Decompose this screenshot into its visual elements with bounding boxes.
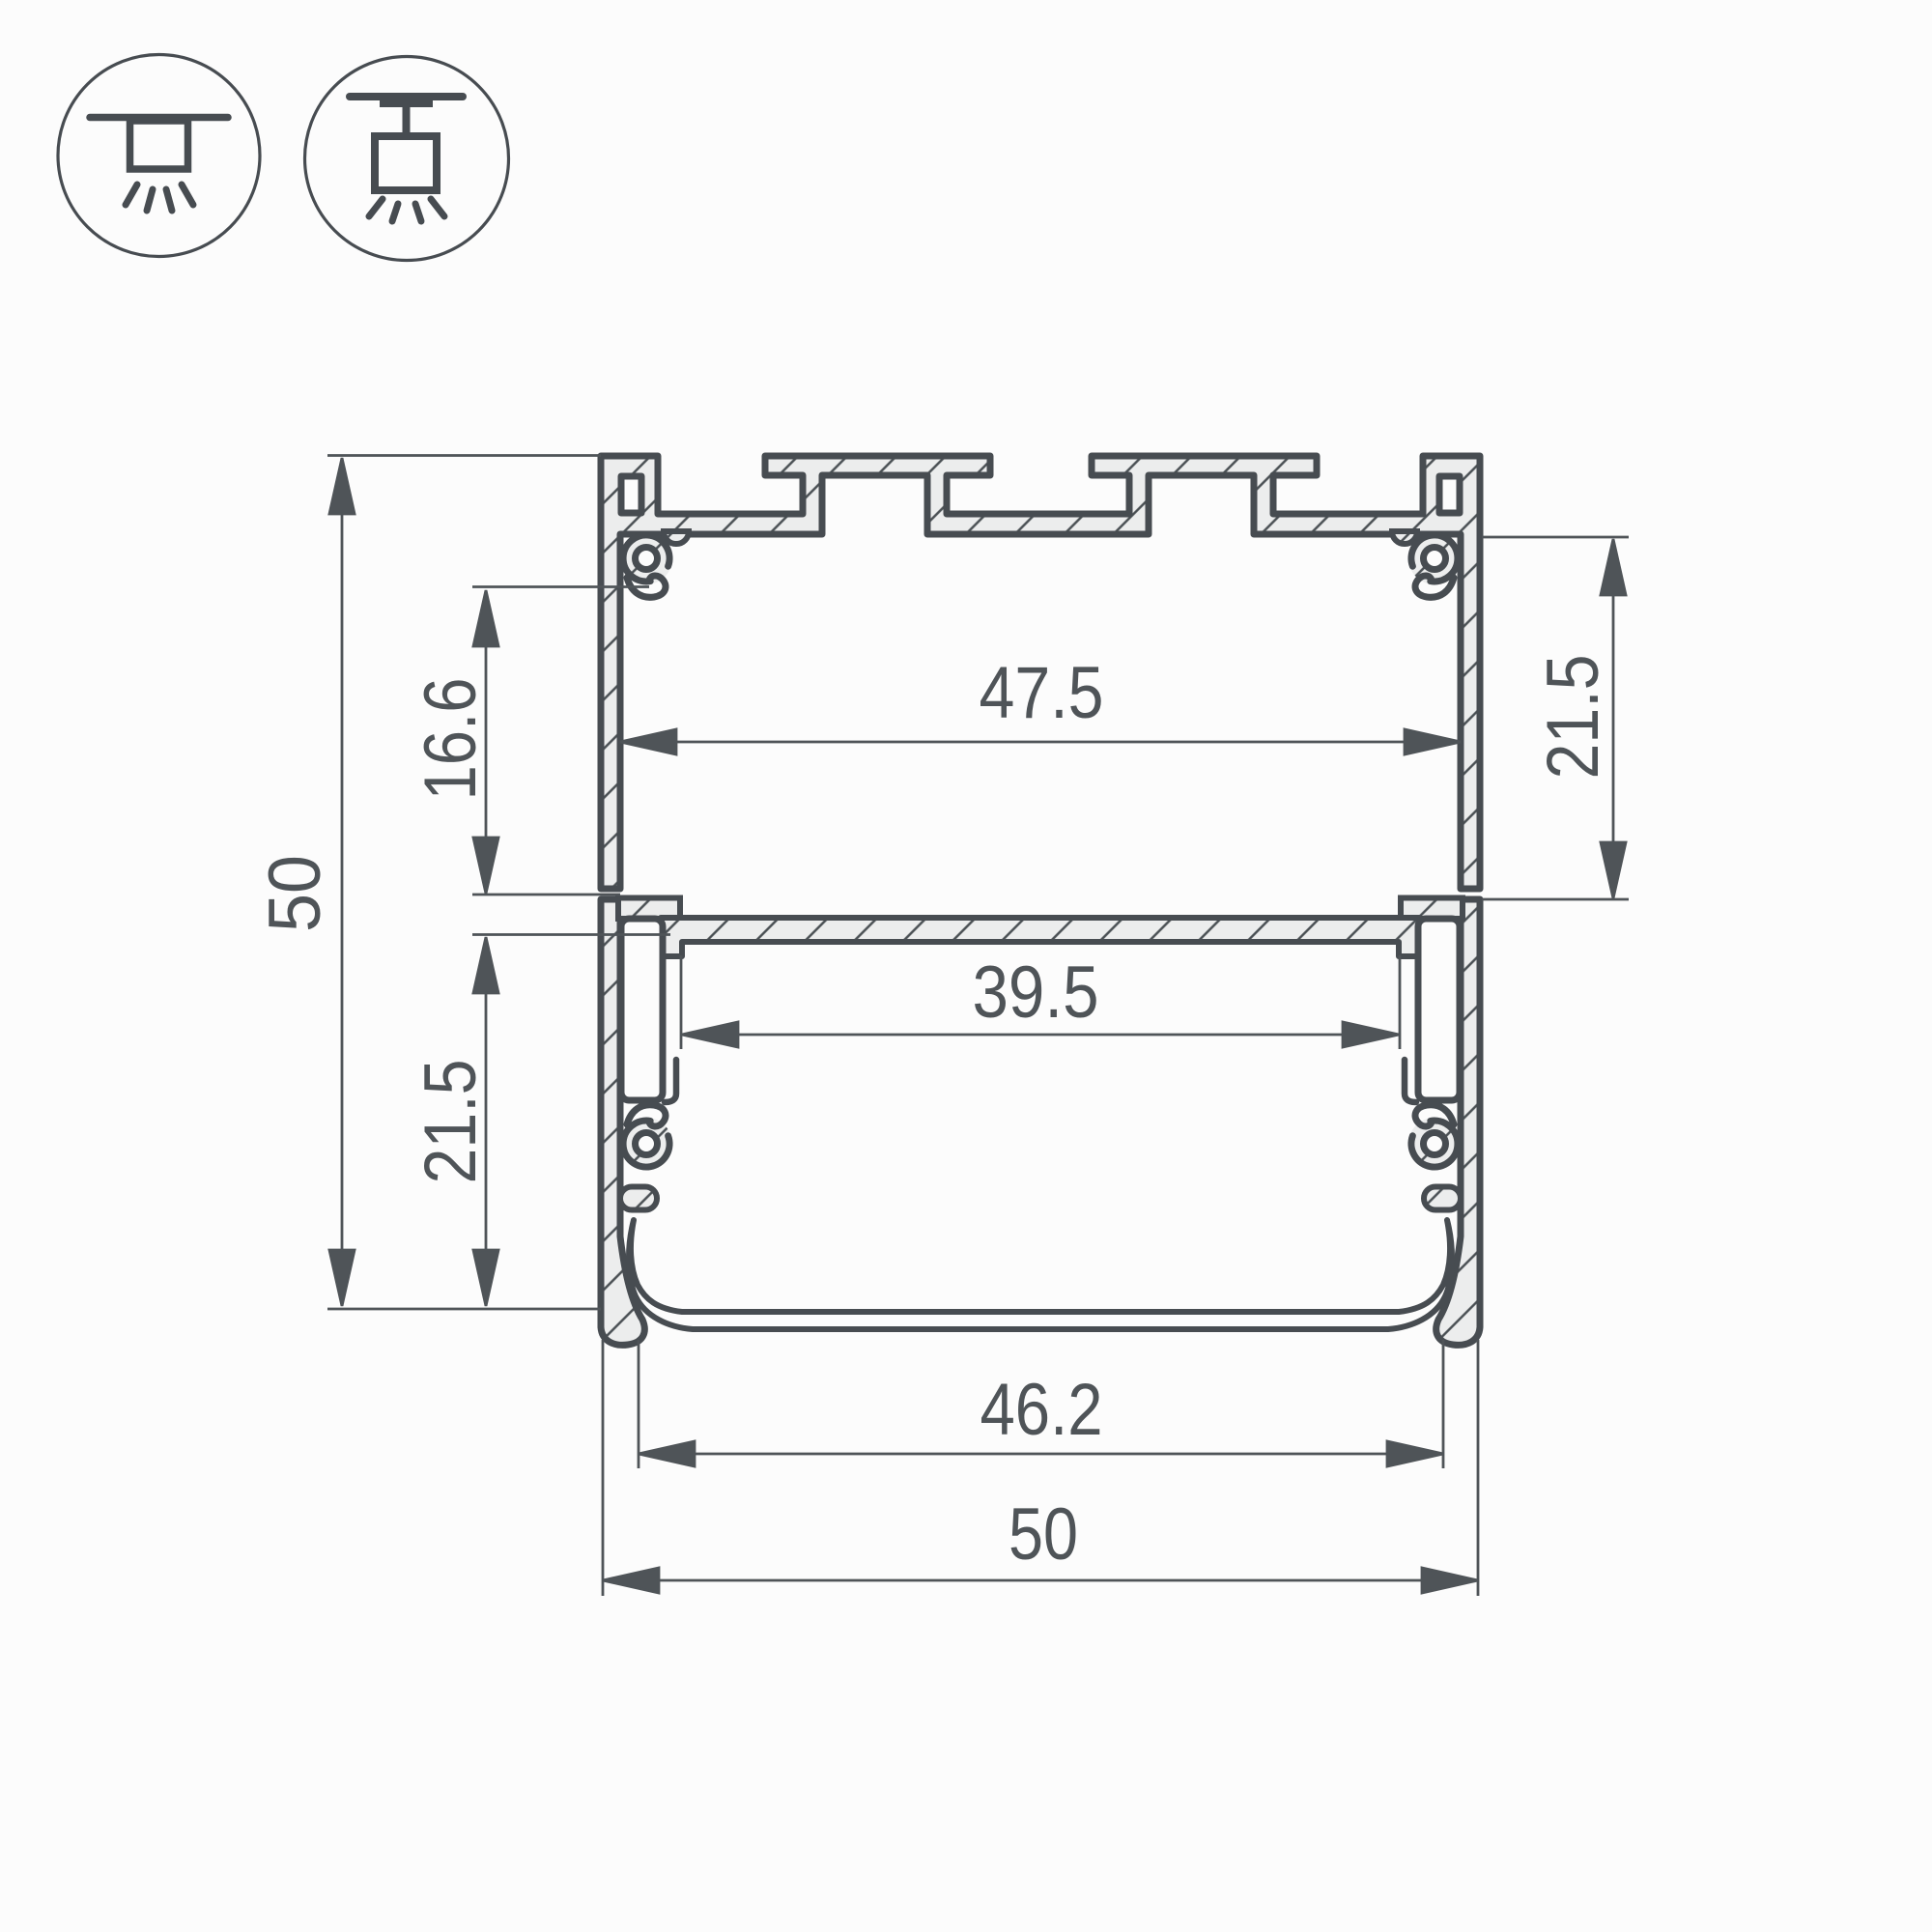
svg-text:21.5: 21.5 — [410, 1060, 492, 1184]
svg-text:39.5: 39.5 — [973, 952, 1099, 1034]
svg-text:21.5: 21.5 — [1532, 655, 1614, 780]
svg-text:50: 50 — [1009, 1493, 1078, 1576]
svg-text:46.2: 46.2 — [980, 1369, 1103, 1451]
svg-text:50: 50 — [254, 855, 336, 932]
svg-text:47.5: 47.5 — [980, 652, 1104, 734]
svg-text:16.6: 16.6 — [410, 678, 492, 801]
